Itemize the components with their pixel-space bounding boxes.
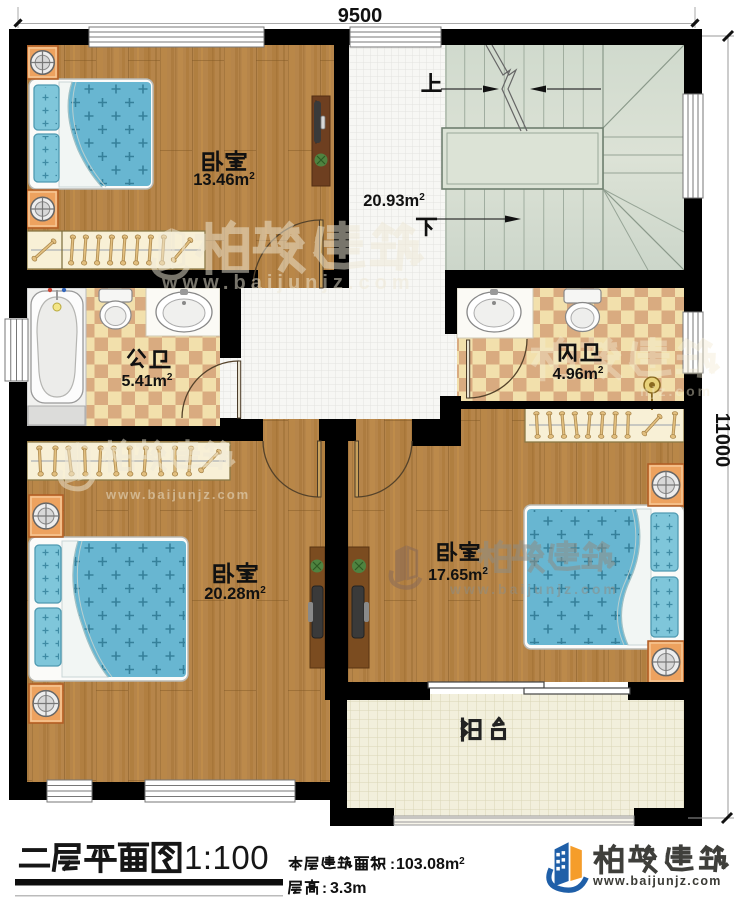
svg-text:www.baijunjz.com: www.baijunjz.com (161, 272, 415, 294)
svg-text:1:100: 1:100 (184, 839, 269, 876)
svg-text:5.41m2: 5.41m2 (122, 372, 173, 390)
svg-text:20.93m2: 20.93m2 (363, 192, 425, 210)
svg-text:www.baijunjz.com: www.baijunjz.com (592, 874, 722, 888)
svg-text:20.28m2: 20.28m2 (204, 585, 266, 603)
svg-text:njz.com: njz.com (640, 383, 713, 399)
svg-text:www.baijunjz.com: www.baijunjz.com (105, 487, 250, 502)
svg-text:11000: 11000 (711, 413, 733, 468)
svg-text:17.65m2: 17.65m2 (428, 566, 488, 584)
svg-text:3.3m: 3.3m (330, 880, 366, 897)
svg-text:13.46m2: 13.46m2 (193, 171, 255, 189)
svg-text:103.08m2: 103.08m2 (396, 856, 465, 873)
svg-text:9500: 9500 (338, 5, 383, 27)
svg-text::: : (390, 856, 395, 873)
svg-text::: : (322, 880, 327, 897)
svg-text:4.96m2: 4.96m2 (553, 365, 604, 383)
